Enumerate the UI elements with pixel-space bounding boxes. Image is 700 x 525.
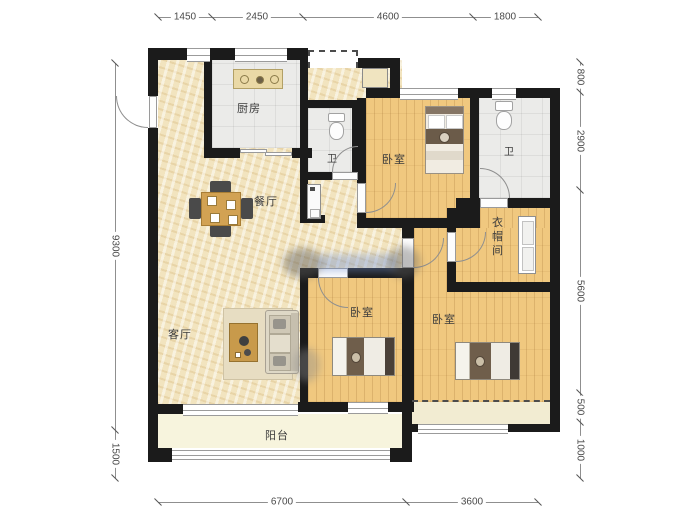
watermark-smudge [294,348,320,382]
wall [308,172,332,180]
bed [425,106,464,174]
watermark-smudge [318,254,398,272]
decor-cup [244,349,251,356]
bay-window [418,424,508,434]
dim-left-2: 1500 [110,440,121,468]
wall [292,148,312,158]
dining-chair [210,225,231,237]
room-label-bedroom-right: 卧室 [432,311,456,327]
ac-platform [308,50,358,68]
balcony-sliding-door [183,404,298,416]
wall [508,424,550,432]
room-label-bath-a: 卫 [327,150,338,165]
bed-pillow [428,115,445,129]
entry-door-arc [116,96,148,128]
wall [300,278,308,412]
wall [300,60,308,158]
bed-decor [475,356,485,367]
coffee-table [229,323,258,362]
window [187,48,210,62]
bath-b-door [480,198,508,208]
dim-top-2: 2450 [243,12,271,23]
wall [298,402,348,412]
plate [226,200,236,210]
wall [148,448,172,462]
bed [455,342,520,380]
wall [447,282,550,292]
dim-bottom-1: 6700 [268,497,296,508]
dimension-line-left [115,63,116,478]
room-label-dining: 餐厅 [254,193,278,209]
burner-icon [240,75,249,84]
stove-counter [233,69,283,89]
toilet [328,113,345,122]
watermark-smudge [388,246,420,278]
wall [287,48,308,60]
room-label-living: 客厅 [168,326,192,342]
room-label-balcony: 阳台 [265,427,289,443]
dim-top-3: 4600 [374,12,402,23]
wall [550,88,560,432]
room-label-bath-b: 卫 [504,143,515,158]
plate [210,213,220,223]
room-label-cloakroom: 衣帽间 [492,216,505,258]
dim-right-4: 500 [575,396,586,419]
dim-right-1: 800 [575,66,586,89]
window [235,48,287,62]
wall [458,88,492,98]
dining-chair [189,198,201,219]
burner-icon [256,76,264,84]
wardrobe-shelf [522,247,534,271]
dim-right-5: 1000 [575,436,586,464]
room-label-bedroom-top: 卧室 [382,151,406,167]
bed-footer [385,338,394,375]
toilet [496,111,512,130]
wall [204,148,240,158]
dim-bottom-2: 3600 [458,497,486,508]
sofa-cushion [269,334,291,353]
bed-headboard [456,343,470,379]
room-label-kitchen: 厨房 [237,100,261,116]
toilet [329,122,344,140]
dim-top-1: 1450 [171,12,199,23]
dim-left-1: 9300 [110,232,121,260]
wall [390,448,412,462]
wall [210,48,235,60]
bed-pillow [446,115,463,129]
room-label-bedroom-middle: 卧室 [350,304,374,320]
window [400,88,458,100]
bed-footer [510,343,519,379]
plate [207,196,217,206]
wall [508,198,550,208]
dim-right-3: 5600 [575,277,586,305]
dimension-line-top [158,17,538,18]
toilet [495,101,513,111]
wall [402,268,414,412]
wall [447,208,456,232]
dim-right-2: 2900 [575,127,586,155]
wall [204,60,212,158]
decor-cup [235,352,241,358]
burner-icon [270,75,279,84]
bed-decor [439,132,450,143]
kitchen-sliding-door [240,149,267,153]
sofa-pillow [273,319,286,329]
floor-bay-window [412,402,550,424]
cloakroom-door [447,232,456,262]
wall [366,88,400,98]
wall [402,228,414,238]
wall [456,198,480,228]
washing-machine [307,184,321,219]
bath-a-door [332,172,358,180]
wall [148,404,183,414]
sofa-pillow [273,356,286,366]
floor-plan: 厨房 卫 卧室 卫 餐厅 衣帽间 客厅 卧室 卧室 阳台 1450 2450 4… [0,0,700,525]
bed [332,337,395,376]
watermark-smudge [283,248,323,278]
kitchen-sliding-door [265,152,292,156]
wall [357,98,366,183]
plate [228,215,238,225]
dining-chair [241,198,253,219]
washer-drum [310,209,320,218]
bay-dashed-line [412,400,550,402]
wardrobe [518,216,536,274]
window [348,402,388,414]
dim-top-4: 1800 [491,12,519,23]
bed-headboard [426,107,463,114]
entry-door [149,96,157,128]
wardrobe-shelf [522,221,534,245]
dining-table [201,192,241,226]
window [492,88,516,100]
bed-blanket [426,151,463,160]
wall [148,48,187,60]
decor-bowl [239,336,249,346]
balcony-glazing [172,450,390,460]
washer-panel [310,187,315,191]
hall-cabinet [362,68,388,88]
bedroom-top-door [357,183,366,213]
bed-headboard [333,338,347,375]
bed-decor [351,352,361,363]
